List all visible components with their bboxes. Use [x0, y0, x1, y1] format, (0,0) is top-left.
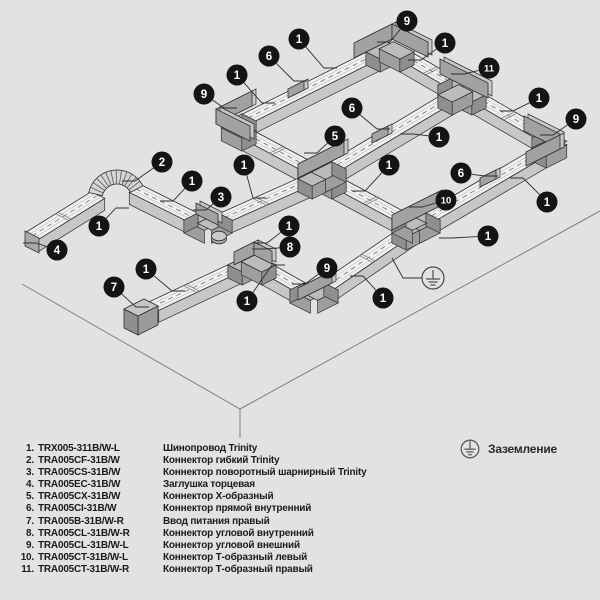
legend-item: 6.TRA005CI-31B/WКоннектор прямой внутрен… — [10, 503, 450, 515]
callout-number: 1 — [386, 160, 393, 172]
callout-number: 9 — [573, 114, 579, 126]
legend-item-desc: Коннектор Т-образный правый — [163, 564, 313, 576]
callout-number: 1 — [296, 34, 303, 46]
legend-item-num: 1. — [10, 443, 34, 455]
callout-number: 9 — [324, 263, 330, 275]
ground-leader-line — [392, 258, 422, 278]
legend-item: 5.TRA005CX-31B/WКоннектор Х-образный — [10, 491, 450, 503]
legend-item-desc: Коннектор прямой внутренний — [163, 503, 311, 515]
legend-item-num: 4. — [10, 479, 34, 491]
legend-item-desc: Коннектор Х-образный — [163, 491, 273, 503]
legend-item: 10.TRA005CT-31B/W-LКоннектор Т-образный … — [10, 552, 450, 564]
callout-number: 6 — [458, 168, 464, 180]
legend-item: 2.TRA005CF-31B/WКоннектор гибкий Trinity — [10, 455, 450, 467]
legend-item-desc: Коннектор Т-образный левый — [163, 552, 307, 564]
track-system-diagram-page: 91619111196511106112131141718911 1.TRX00… — [0, 0, 600, 600]
callout-number: 1 — [544, 197, 551, 209]
legend-item-code: TRA005CX-31B/W — [38, 491, 163, 503]
legend-item-code: TRA005EC-31B/W — [38, 479, 163, 491]
callout-leader — [439, 237, 478, 238]
callout-number: 1 — [241, 160, 248, 172]
legend-rows: 1.TRX005-311B/W-LШинопровод Trinity2.TRA… — [10, 443, 450, 576]
callout-number: 1 — [143, 264, 150, 276]
legend-item-desc: Коннектор угловой внешний — [163, 540, 300, 552]
legend-item: 4.TRA005EC-31B/WЗаглушка торцевая — [10, 479, 450, 491]
swivel-pivot-disk-top — [212, 231, 227, 241]
callout-number: 1 — [244, 296, 251, 308]
legend-item-code: TRA005CT-31B/W-L — [38, 552, 163, 564]
legend-item-num: 8. — [10, 528, 34, 540]
callout-number: 1 — [485, 231, 492, 243]
legend-item-code: TRX005-311B/W-L — [38, 443, 163, 455]
callout-number: 1 — [442, 38, 449, 50]
legend-item-num: 9. — [10, 540, 34, 552]
legend-item-desc: Коннектор поворотный шарнирный Trinity — [163, 467, 366, 479]
legend-item-code: TRA005CT-31B/W-R — [38, 564, 163, 576]
legend-item-desc: Ввод питания правый — [163, 516, 270, 528]
legend-item-code: TRA005CF-31B/W — [38, 455, 163, 467]
legend-item-desc: Коннектор угловой внутренний — [163, 528, 314, 540]
legend-item-code: TRA005CI-31B/W — [38, 503, 163, 515]
callout-number: 8 — [287, 242, 294, 254]
callout-number: 6 — [266, 51, 272, 63]
legend-item-desc: Шинопровод Trinity — [163, 443, 257, 455]
callout-number: 6 — [349, 103, 355, 115]
callout-number: 9 — [201, 89, 207, 101]
callout-number: 1 — [436, 132, 443, 144]
callout-number: 5 — [332, 131, 339, 143]
legend-item: 3.TRA005CS-31B/WКоннектор поворотный шар… — [10, 467, 450, 479]
legend-item-num: 6. — [10, 503, 34, 515]
callout-number: 1 — [536, 93, 543, 105]
legend-item: 8.TRA005CL-31B/W-RКоннектор угловой внут… — [10, 528, 450, 540]
ground-icon — [459, 438, 481, 460]
legend-item-desc: Заглушка торцевая — [163, 479, 255, 491]
callout-number: 1 — [96, 221, 103, 233]
legend-item-num: 7. — [10, 516, 34, 528]
ground-legend: Заземление — [459, 438, 557, 460]
legend-item: 11.TRA005CT-31B/W-RКоннектор Т-образный … — [10, 564, 450, 576]
ground-label: Заземление — [488, 442, 557, 456]
callout-leader — [276, 63, 307, 81]
callout-number: 11 — [484, 63, 495, 74]
legend-item-desc: Коннектор гибкий Trinity — [163, 455, 279, 467]
legend-item-code: TRA005CL-31B/W-R — [38, 528, 163, 540]
callout-leader — [306, 47, 337, 68]
legend-item: 1.TRX005-311B/W-LШинопровод Trinity — [10, 443, 450, 455]
legend-item-code: TRA005CL-31B/W-L — [38, 540, 163, 552]
legend-item: 9.TRA005CL-31B/W-LКоннектор угловой внеш… — [10, 540, 450, 552]
legend-item-num: 10. — [10, 552, 34, 564]
legend-item-num: 2. — [10, 455, 34, 467]
legend-item-code: TRA005CS-31B/W — [38, 467, 163, 479]
callout-number: 3 — [218, 192, 224, 204]
legend-item-num: 11. — [10, 564, 34, 576]
callout-leader — [106, 208, 129, 218]
callout-number: 2 — [159, 157, 165, 169]
legend-item: 7.TRA005B-31B/W-RВвод питания правый — [10, 516, 450, 528]
callout-number: 1 — [286, 221, 293, 233]
legend-item-code: TRA005B-31B/W-R — [38, 516, 163, 528]
legend-item-num: 5. — [10, 491, 34, 503]
parts-legend: 1.TRX005-311B/W-LШинопровод Trinity2.TRA… — [10, 443, 450, 576]
callout-number: 10 — [441, 195, 452, 206]
callout-number: 1 — [380, 293, 387, 305]
callout-number: 4 — [54, 245, 61, 257]
callout-number: 9 — [404, 16, 410, 28]
ceiling-plane-outline — [22, 211, 600, 409]
callout-number: 1 — [189, 176, 196, 188]
legend-item-num: 3. — [10, 467, 34, 479]
callout-number: 1 — [234, 70, 241, 82]
callout-number: 7 — [111, 282, 117, 294]
